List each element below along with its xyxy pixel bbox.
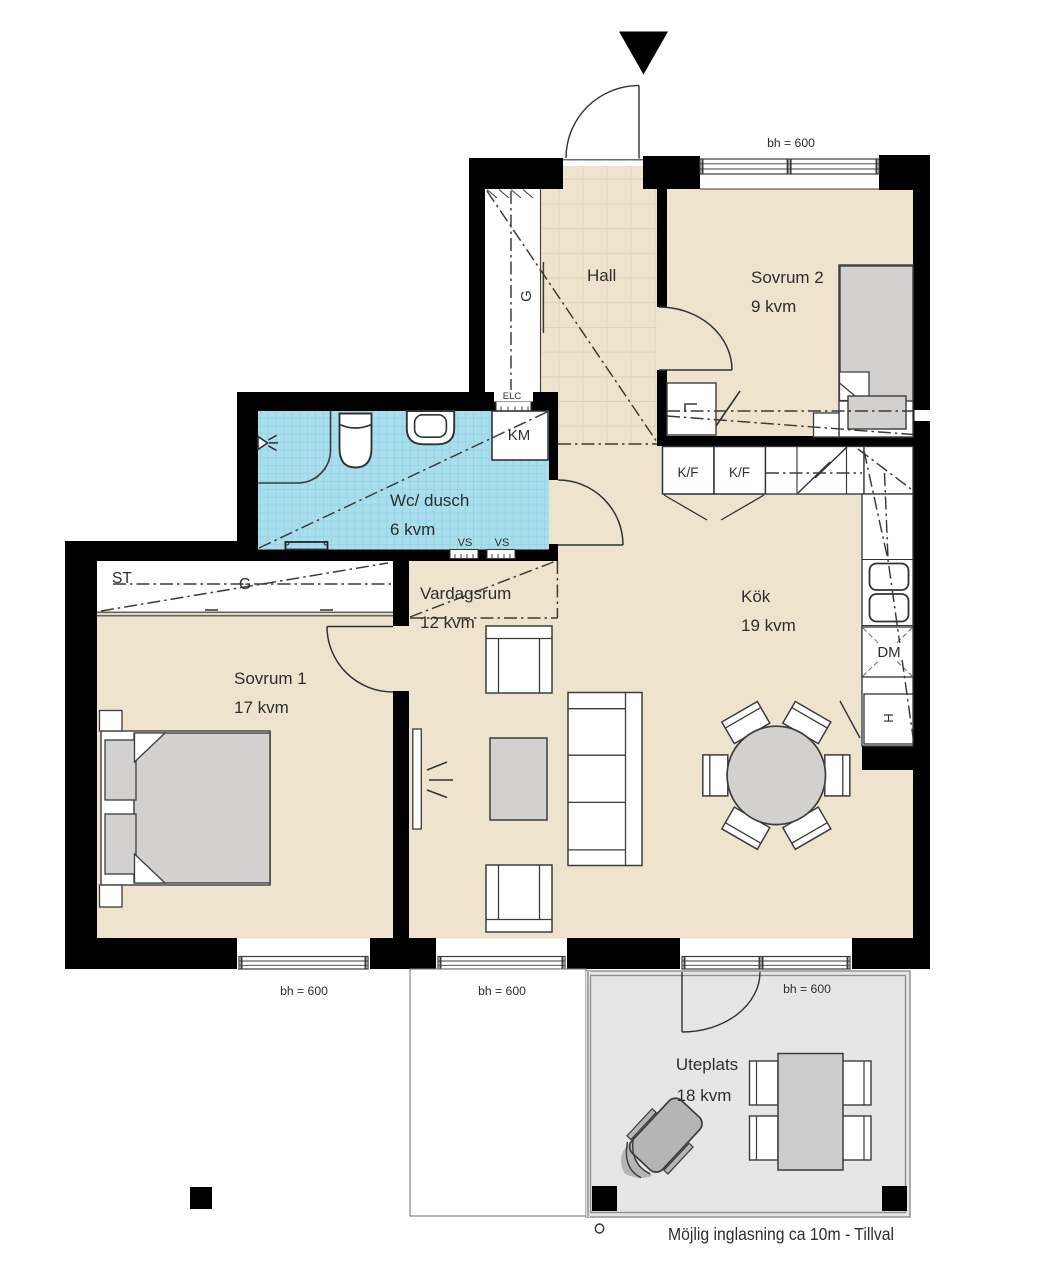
svg-text:G: G <box>518 290 535 302</box>
svg-text:H: H <box>881 713 896 722</box>
svg-text:6 kvm: 6 kvm <box>390 520 435 539</box>
svg-text:Vardagsrum: Vardagsrum <box>420 584 511 603</box>
svg-text:KM: KM <box>508 427 531 444</box>
svg-text:bh = 600: bh = 600 <box>280 984 328 998</box>
svg-text:Wc/ dusch: Wc/ dusch <box>390 491 469 510</box>
svg-text:12 kvm: 12 kvm <box>420 613 475 632</box>
svg-text:VS: VS <box>458 537 473 549</box>
svg-text:bh = 600: bh = 600 <box>767 136 815 150</box>
svg-text:18 kvm: 18 kvm <box>677 1086 732 1105</box>
svg-text:DM: DM <box>877 644 900 661</box>
svg-text:19 kvm: 19 kvm <box>741 616 796 635</box>
svg-text:bh = 600: bh = 600 <box>783 982 831 996</box>
svg-text:ST: ST <box>112 570 132 587</box>
svg-text:Kök: Kök <box>741 587 771 606</box>
svg-text:VS: VS <box>495 537 510 549</box>
svg-text:K/F: K/F <box>677 465 698 480</box>
svg-text:K/F: K/F <box>729 465 750 480</box>
svg-text:Uteplats: Uteplats <box>676 1055 738 1074</box>
svg-text:ELC: ELC <box>503 391 522 402</box>
svg-text:17 kvm: 17 kvm <box>234 698 289 717</box>
svg-text:Hall: Hall <box>587 266 616 285</box>
svg-text:bh = 600: bh = 600 <box>478 984 526 998</box>
svg-text:Möjlig inglasning ca 10m - Til: Möjlig inglasning ca 10m - Tillval <box>668 1224 894 1244</box>
svg-text:9 kvm: 9 kvm <box>751 297 796 316</box>
svg-text:Sovrum 1: Sovrum 1 <box>234 669 307 688</box>
svg-text:G: G <box>239 576 251 593</box>
svg-text:Sovrum 2: Sovrum 2 <box>751 268 824 287</box>
